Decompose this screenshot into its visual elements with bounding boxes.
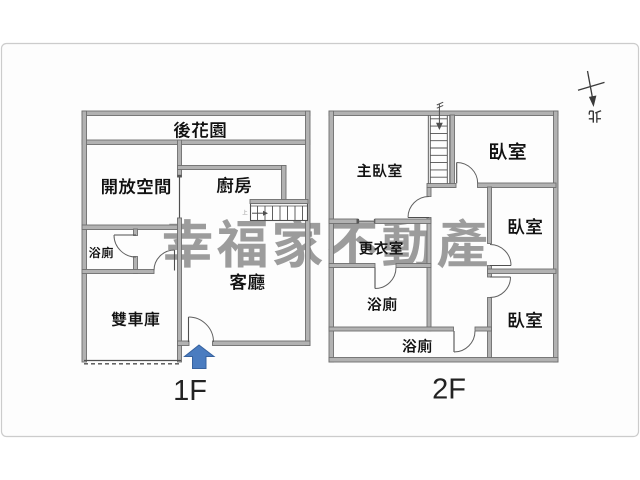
svg-text:2F: 2F	[432, 374, 466, 406]
svg-text:1F: 1F	[173, 375, 207, 407]
